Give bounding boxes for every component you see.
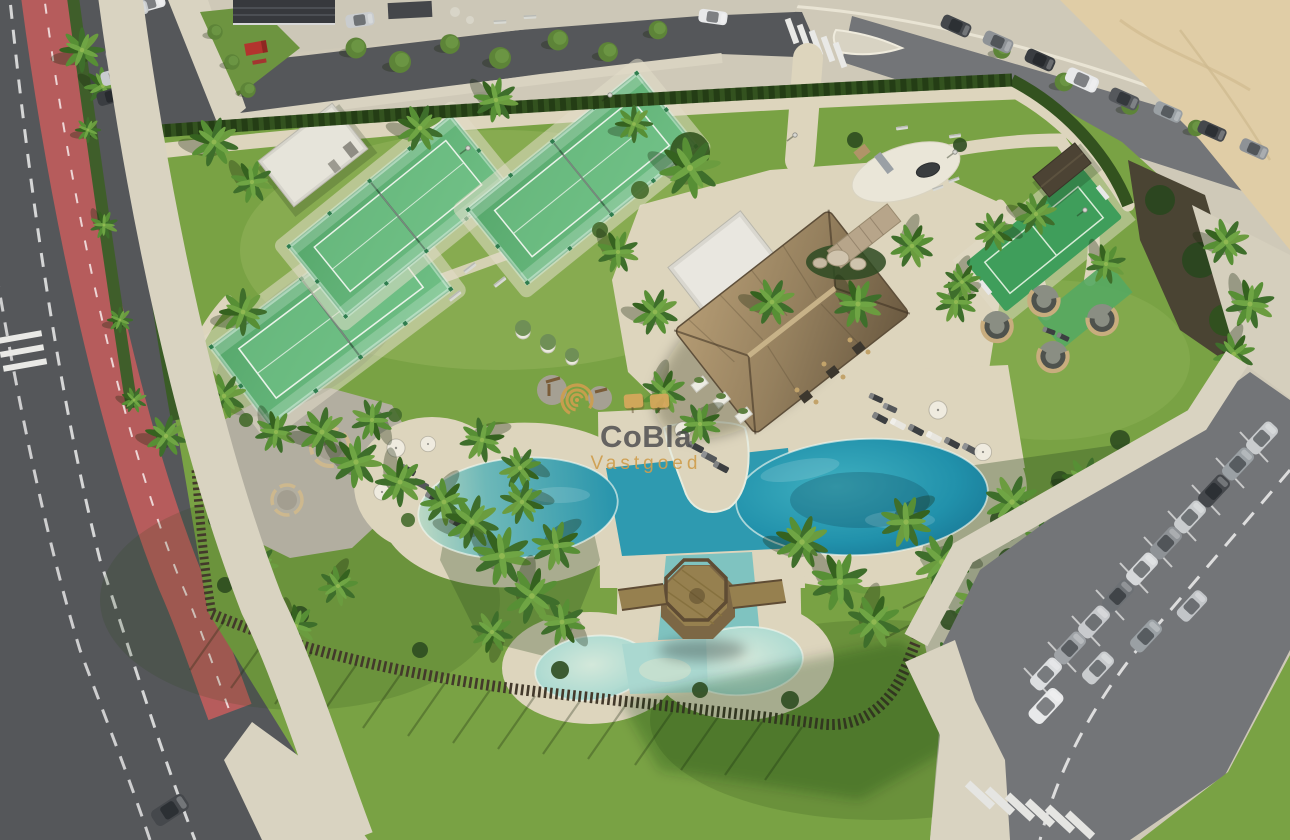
street-bench: [494, 20, 507, 24]
street-building: [233, 0, 335, 24]
scene-canvas: [0, 0, 1290, 840]
aerial-photo: CoBla Vastgoed: [0, 0, 1290, 840]
boulder: [813, 258, 827, 268]
street-kiosk: [388, 1, 433, 19]
street-bench: [524, 15, 537, 19]
boulder: [827, 250, 849, 266]
boulder: [850, 258, 866, 270]
